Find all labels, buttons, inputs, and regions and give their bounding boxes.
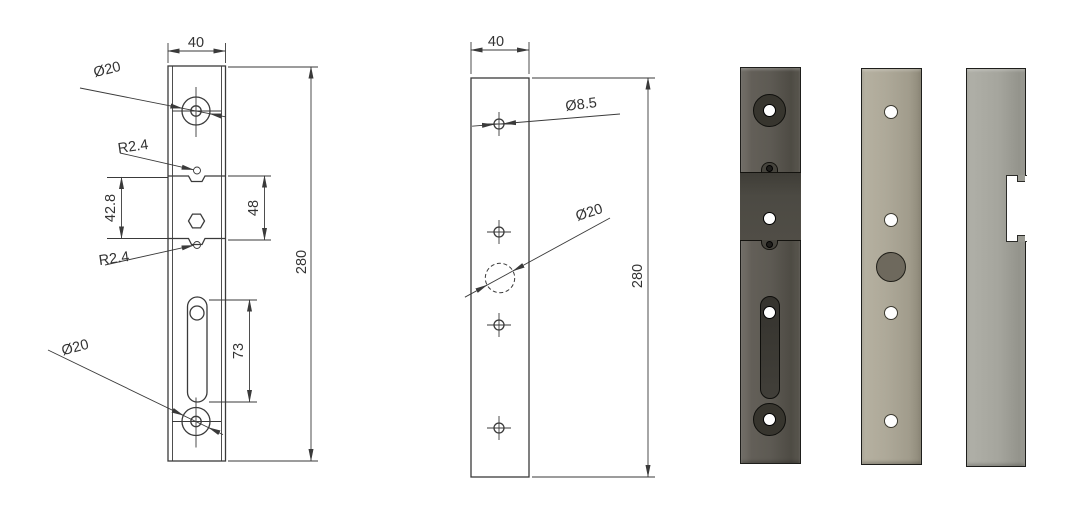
strike-plate-front-view: 40 42.8 48 73 [48, 35, 318, 461]
dim-text-40-middle: 40 [488, 34, 504, 50]
label-dia20-middle: Ø20 [574, 201, 605, 225]
dim-text-48: 48 [246, 200, 262, 216]
cad-drawing-page: 40 42.8 48 73 [0, 0, 1085, 529]
hole-1-3d [884, 105, 898, 119]
label-dia20-top: Ø20 [92, 59, 122, 81]
plate-outline [471, 78, 529, 477]
hole-4-3d [884, 414, 898, 428]
hole-pocket-3d [763, 212, 776, 225]
lip-tab-top [1017, 175, 1025, 182]
pocket-recess-3d [740, 172, 801, 241]
dim-text-73: 73 [231, 343, 247, 359]
dim-text-42-8: 42.8 [103, 194, 119, 222]
technical-drawing-canvas: 40 42.8 48 73 [0, 0, 1085, 529]
label-r24-top: R2.4 [117, 137, 150, 157]
notch-hole-bottom-3d [766, 241, 773, 248]
label-r24-bottom: R2.4 [98, 249, 131, 269]
label-dia20-bottom: Ø20 [60, 337, 91, 360]
hole-2-3d [884, 213, 898, 227]
dim-text-40: 40 [188, 35, 204, 51]
render-side-profile [966, 68, 1026, 467]
hole-3-3d [884, 306, 898, 320]
flat-plate-front-view: 40 280 Ø8.5 Ø20 [465, 34, 655, 477]
recess-circle-3d [876, 252, 906, 282]
dim-text-280-left: 280 [294, 250, 310, 274]
render-flat-plate-front [861, 68, 922, 465]
dimension-width-40-middle: 40 [471, 34, 529, 74]
render-strike-plate-front [740, 67, 801, 464]
hole-bottom-3d [763, 413, 776, 426]
label-dia85: Ø8.5 [565, 95, 598, 115]
side-notch-cutout [1006, 175, 1027, 242]
notch-hole-top-3d [766, 165, 773, 172]
dimension-height-280-middle: 280 [532, 78, 655, 477]
hole-slot-3d [763, 306, 776, 319]
dim-text-280-middle: 280 [630, 264, 646, 288]
dimension-pocket-span: 42.8 [103, 178, 168, 239]
dimension-width-40: 40 [168, 35, 226, 63]
lip-tab-bottom [1017, 235, 1025, 242]
dimension-pocket-height: 48 [228, 176, 271, 240]
hole-top-3d [763, 104, 776, 117]
